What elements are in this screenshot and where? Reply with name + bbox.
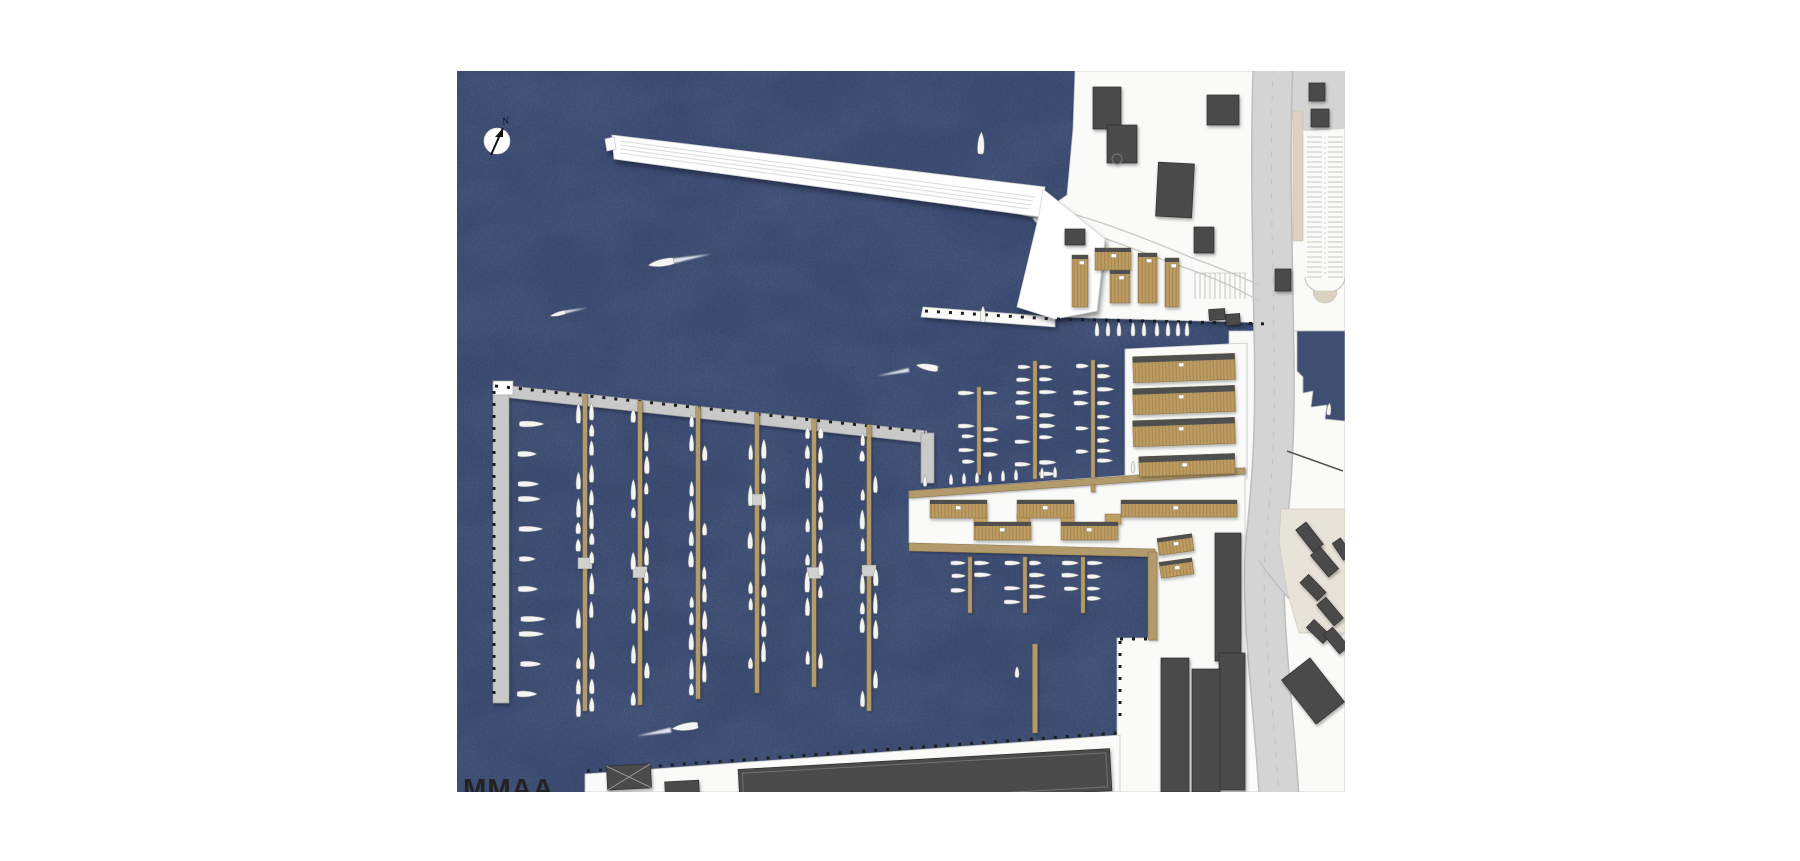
boat-shed [930, 500, 987, 518]
wooden-pier [968, 557, 972, 613]
boat-shed [1017, 500, 1074, 518]
boat-shed [1133, 385, 1236, 415]
wooden-pier [638, 401, 643, 705]
building [1311, 109, 1329, 127]
building [1309, 83, 1325, 101]
road-platform [1293, 111, 1303, 241]
wooden-pier [1091, 360, 1095, 492]
building [1209, 308, 1226, 320]
building [1065, 229, 1085, 245]
crossed-roof-building [606, 764, 651, 790]
wooden-pier [1081, 557, 1085, 613]
wooden-pier [1033, 361, 1037, 479]
building [1226, 314, 1241, 326]
building [1156, 162, 1195, 218]
logo-text: MMAA [463, 773, 554, 792]
building [1219, 653, 1245, 790]
pier-tip-notch [605, 137, 616, 151]
boat-shed [974, 522, 1031, 540]
boat-shed [1139, 453, 1236, 476]
plan-drawing: N MMAA [457, 71, 1345, 792]
boat-shed [1061, 522, 1118, 540]
wooden-pier [977, 387, 981, 475]
boat-shed [1072, 255, 1088, 307]
wooden-pier [1033, 644, 1038, 733]
marina-site-plan: N MMAA [457, 71, 1345, 792]
boat-shed [1133, 417, 1236, 447]
building [1192, 669, 1220, 792]
plan-scene [457, 71, 1345, 792]
building [1207, 95, 1239, 125]
wooden-pier [583, 395, 588, 711]
building [1093, 87, 1121, 129]
building [1194, 227, 1214, 253]
breakwater-stub [921, 433, 934, 483]
site-plan-canvas: N MMAA [0, 0, 1800, 861]
wooden-pier [812, 419, 817, 687]
boat-shed [1110, 270, 1130, 303]
boat-shed [1121, 500, 1237, 517]
boat-shed [1138, 253, 1157, 303]
building [1275, 269, 1291, 291]
building [665, 780, 700, 792]
wood-quay-edge [1148, 552, 1157, 640]
boat-shed [1165, 258, 1179, 307]
boat-shed [1133, 353, 1236, 383]
building [1215, 533, 1241, 661]
boat-shed [1095, 248, 1131, 270]
building [1161, 658, 1189, 792]
wooden-pier [1023, 557, 1027, 613]
breakwater-corner-cap [493, 381, 513, 395]
wooden-pier [696, 407, 701, 699]
wooden-pier [755, 413, 760, 693]
